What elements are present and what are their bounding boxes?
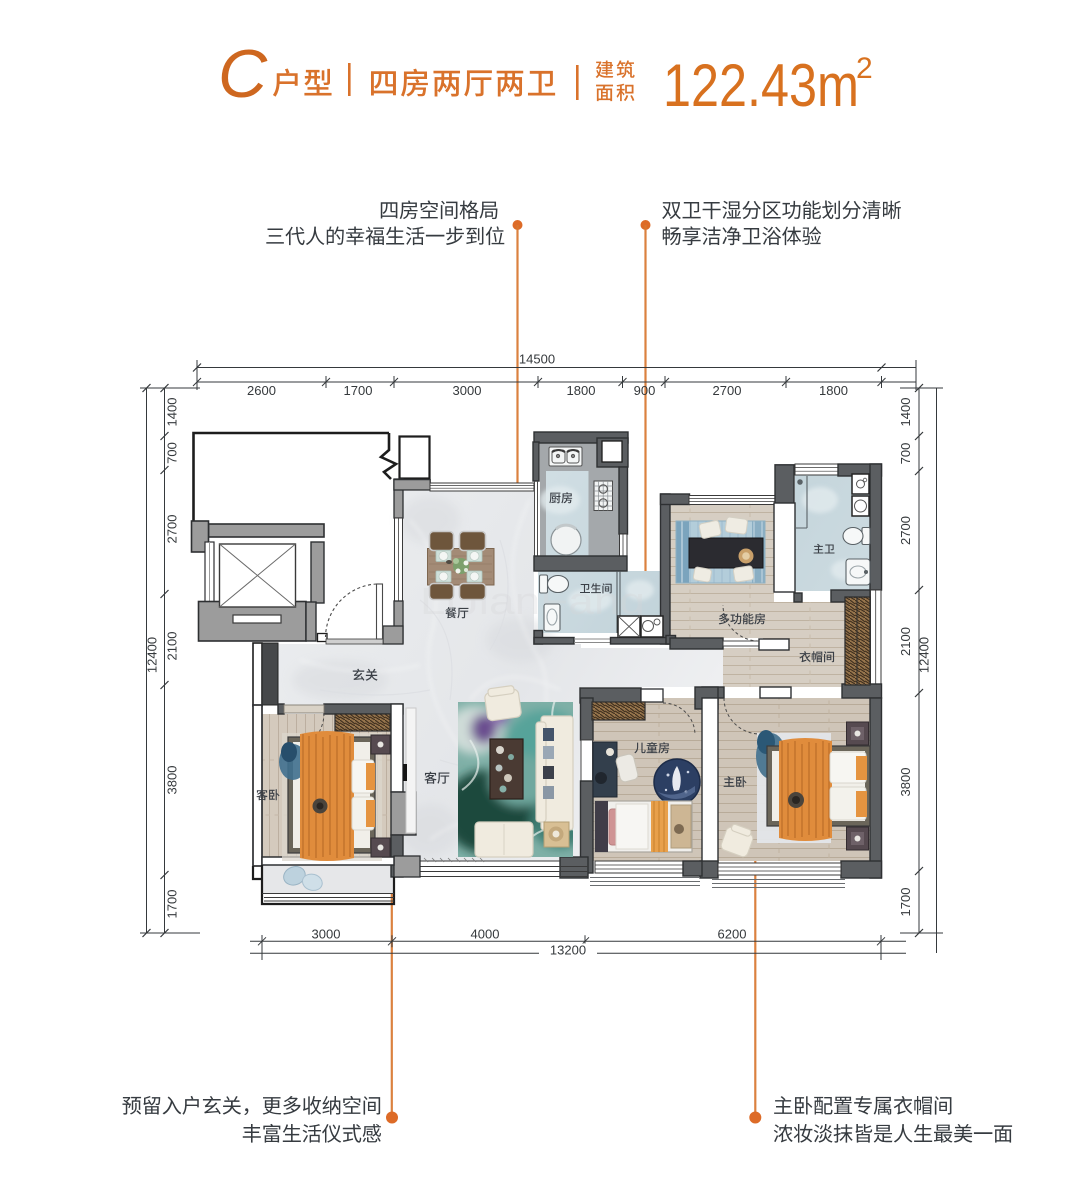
svg-text:2600: 2600 (247, 383, 276, 398)
svg-text:1800: 1800 (819, 383, 848, 398)
svg-text:2: 2 (856, 52, 873, 85)
svg-text:1700: 1700 (165, 890, 180, 919)
svg-text:1700: 1700 (344, 383, 373, 398)
svg-text:1700: 1700 (898, 888, 913, 917)
svg-text:2700: 2700 (165, 515, 180, 544)
svg-text:3800: 3800 (165, 766, 180, 795)
svg-text:6200: 6200 (718, 926, 747, 941)
svg-text:12400: 12400 (145, 637, 160, 673)
svg-text:2100: 2100 (165, 632, 180, 661)
svg-text:2700: 2700 (898, 516, 913, 545)
svg-text:4000: 4000 (471, 926, 500, 941)
svg-text:1800: 1800 (567, 383, 596, 398)
svg-text:700: 700 (898, 443, 913, 465)
svg-text:2700: 2700 (713, 383, 742, 398)
svg-text:14500: 14500 (519, 352, 555, 367)
svg-text:3000: 3000 (312, 926, 341, 941)
svg-text:900: 900 (634, 383, 656, 398)
svg-text:3800: 3800 (898, 768, 913, 797)
svg-text:122.43m: 122.43m (663, 52, 859, 119)
svg-text:2100: 2100 (898, 627, 913, 656)
svg-text:700: 700 (165, 442, 180, 464)
svg-text:3000: 3000 (453, 383, 482, 398)
svg-text:1400: 1400 (898, 398, 913, 427)
svg-text:13200: 13200 (550, 943, 586, 958)
svg-text:1400: 1400 (165, 398, 180, 427)
svg-text:C: C (218, 36, 268, 112)
svg-text:12400: 12400 (917, 637, 932, 673)
